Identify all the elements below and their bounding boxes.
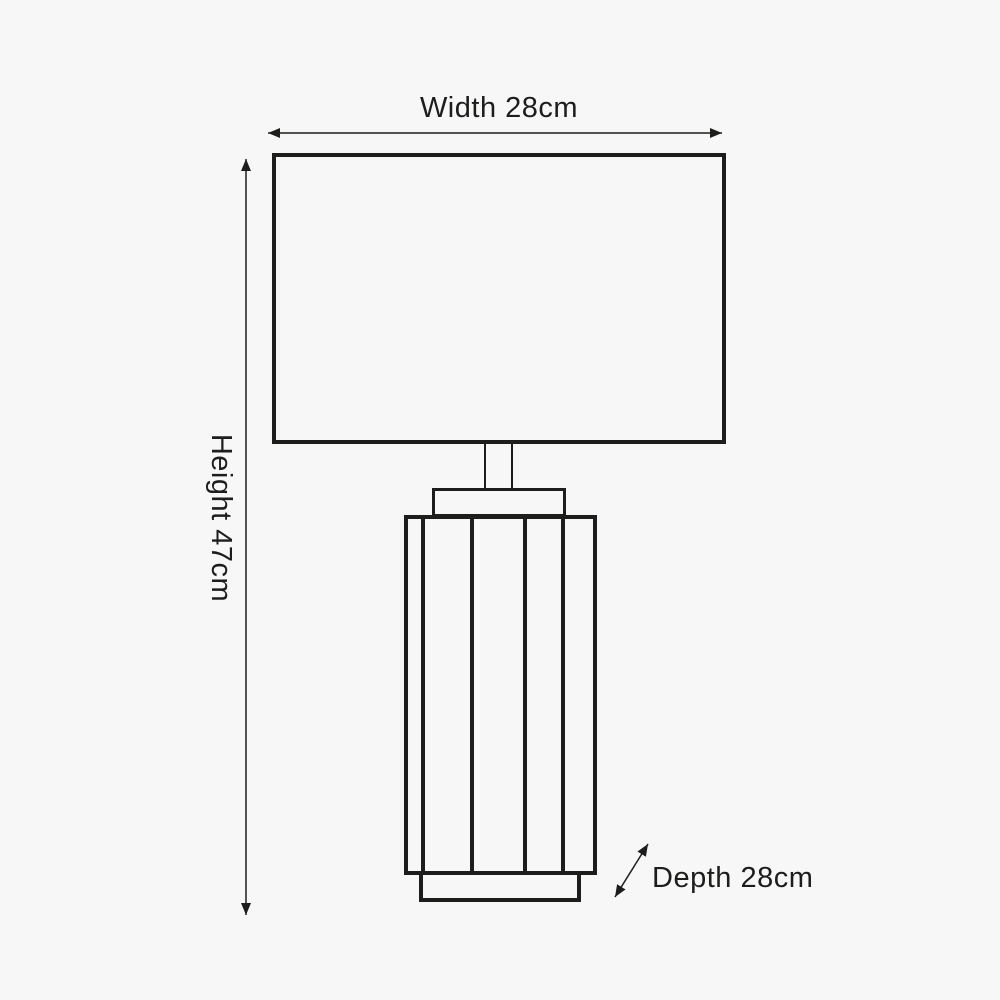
lamp-body-slat bbox=[523, 519, 527, 871]
lamp-body-slat bbox=[561, 519, 565, 871]
lamp-stem bbox=[484, 442, 513, 489]
lamp-base-plinth bbox=[419, 875, 581, 902]
height-dimension-label: Height 47cm bbox=[204, 418, 238, 618]
lamp-body-slat bbox=[470, 519, 474, 871]
depth-dimension-arrow bbox=[615, 844, 648, 897]
lamp-dimension-diagram: Width 28cm Height 47cm Depth 28cm bbox=[0, 0, 1000, 1000]
width-dimension-label: Width 28cm bbox=[272, 92, 726, 125]
lamp-body-slat bbox=[421, 519, 425, 871]
lamp-body bbox=[404, 515, 597, 875]
lamp-neck-collar bbox=[432, 488, 566, 517]
depth-dimension-label: Depth 28cm bbox=[652, 862, 813, 895]
lamp-shade bbox=[272, 153, 726, 444]
